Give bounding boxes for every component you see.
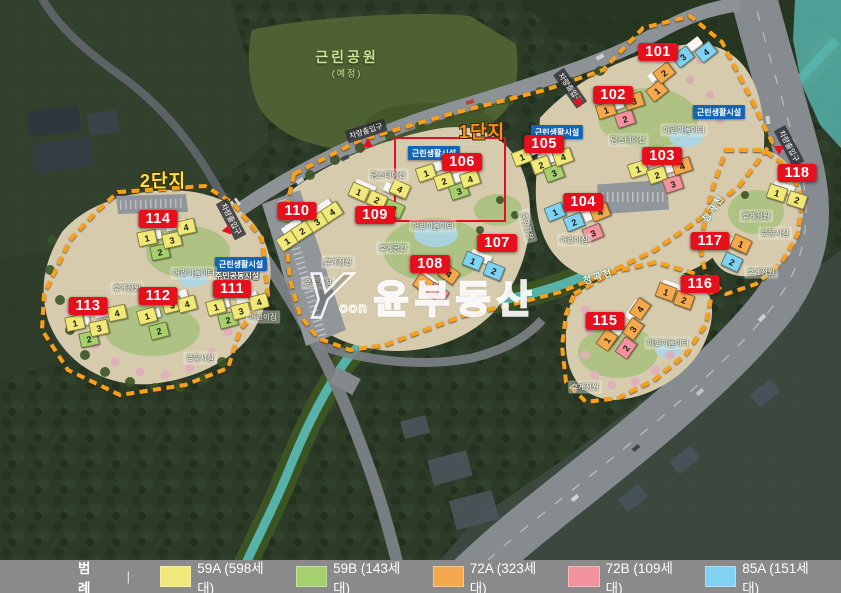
label-zone2: 2단지 — [140, 167, 186, 193]
legend-swatch-59B — [296, 566, 327, 587]
legend-item-72A: 72A (323세대) — [433, 557, 544, 593]
legend-swatch-59A — [160, 566, 191, 587]
entrance-arrow-icon — [363, 138, 373, 147]
label-ground: 휴게정원 — [739, 210, 773, 223]
label-zone1: 1단지 — [459, 118, 505, 144]
label-ground: 휴게공간 — [376, 242, 410, 255]
building-badge-102: 102 — [593, 86, 633, 104]
entrance-arrow-icon — [774, 146, 784, 155]
building-badge-110: 110 — [278, 202, 317, 220]
legend-label-72A: 72A (323세대) — [470, 557, 544, 593]
building-badge-105: 105 — [524, 135, 564, 153]
building-badge-108: 108 — [410, 255, 450, 273]
legend-bar: 범례 | 59A (598세대)59B (143세대)72A (323세대)72… — [0, 560, 841, 593]
building-badge-104: 104 — [563, 193, 603, 211]
label-ground: 맘스테이션 — [608, 134, 649, 147]
label-ground: 휴게정원 — [568, 381, 602, 394]
building-badge-118: 118 — [778, 164, 817, 182]
label-ground: 어린이집 — [557, 234, 591, 247]
building-badge-101: 101 — [638, 43, 678, 61]
label-facility: 근린생활시설 — [215, 257, 267, 271]
building-badge-103: 103 — [642, 147, 682, 165]
label-ground: 어린이놀이터 — [170, 267, 217, 280]
legend-swatch-85A — [705, 566, 736, 587]
legend-swatch-72A — [433, 566, 464, 587]
label-park: 근린공원 — [315, 47, 379, 67]
building-badge-111: 111 — [213, 280, 251, 298]
label-park-sub: (예정) — [332, 67, 363, 80]
building-badge-112: 112 — [139, 287, 178, 305]
building-badge-107: 107 — [477, 234, 517, 252]
label-ground: 어린이놀이터 — [409, 220, 456, 233]
legend-label-85A: 85A (151세대) — [742, 557, 816, 593]
legend-label-72B: 72B (109세대) — [606, 557, 680, 593]
building-badge-117: 117 — [691, 232, 730, 250]
label-ground: 어린이집 — [246, 311, 280, 324]
legend-swatch-72B — [568, 566, 599, 587]
label-ground: 어린이놀이터 — [660, 124, 707, 137]
legend-items: 59A (598세대)59B (143세대)72A (323세대)72B (10… — [160, 557, 841, 593]
building-badge-113: 113 — [69, 297, 108, 315]
building-badge-106: 106 — [442, 153, 482, 171]
legend-item-59A: 59A (598세대) — [160, 557, 271, 593]
site-plan-map: Y oon 윤부동산 범례 | 59A (598세대)59B (143세대)72… — [0, 0, 841, 593]
building-badge-116: 116 — [681, 275, 720, 293]
label-ground: 운동시설 — [183, 352, 217, 365]
legend-title: 범례 — [78, 557, 101, 593]
building-badge-115: 115 — [586, 312, 625, 330]
label-ground: 운동시설 — [301, 277, 335, 290]
legend-divider: | — [127, 569, 130, 584]
label-ground: 맘스테이션 — [368, 169, 409, 182]
label-ground: 휴게정원 — [744, 266, 778, 279]
label-ground: 어린이놀이터 — [644, 337, 691, 350]
building-badge-114: 114 — [139, 210, 178, 228]
label-ground: 운동시설 — [758, 227, 792, 240]
legend-label-59B: 59B (143세대) — [333, 557, 407, 593]
legend-item-59B: 59B (143세대) — [296, 557, 408, 593]
legend-item-72B: 72B (109세대) — [568, 557, 680, 593]
label-facility: 근린생활시설 — [693, 105, 745, 119]
map-artwork — [0, 0, 841, 593]
legend-label-59A: 59A (598세대) — [197, 557, 271, 593]
building-badge-109: 109 — [355, 206, 395, 224]
legend-item-85A: 85A (151세대) — [705, 557, 816, 593]
label-ground: 휴게정원 — [321, 256, 355, 269]
